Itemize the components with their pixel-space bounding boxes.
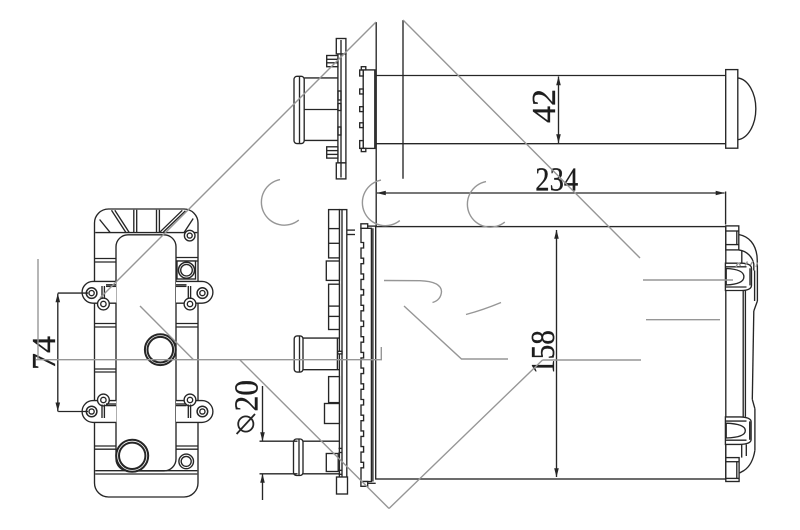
svg-text:158: 158 [524, 330, 562, 374]
svg-text:234: 234 [535, 160, 578, 198]
svg-text:20: 20 [229, 380, 266, 412]
svg-text:42: 42 [526, 89, 563, 123]
svg-text:74: 74 [26, 336, 63, 370]
